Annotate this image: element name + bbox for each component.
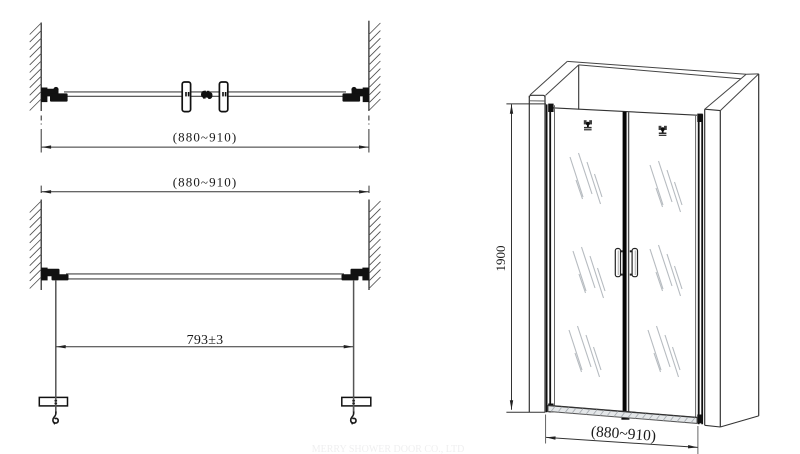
svg-text:793±3: 793±3 <box>187 333 224 348</box>
svg-text:(880~910): (880~910) <box>590 423 656 445</box>
svg-text:1900: 1900 <box>493 246 508 272</box>
svg-text:(880~910): (880~910) <box>173 175 238 190</box>
svg-text:MERRY SHOWER DOOR CO., LTD: MERRY SHOWER DOOR CO., LTD <box>312 444 465 454</box>
svg-text:(880~910): (880~910) <box>173 130 238 145</box>
